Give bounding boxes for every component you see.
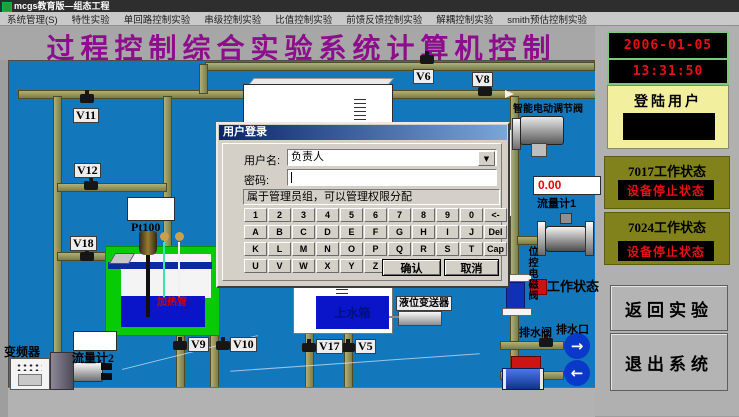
drain-valve-label: 排水阀 [519,324,552,340]
confirm-button[interactable]: 确认 [382,259,441,276]
valve-v12[interactable] [84,181,98,190]
key-button[interactable]: M [292,242,315,256]
status-7024-title: 7024工作状态 [605,217,729,236]
key-button[interactable]: N [316,242,339,256]
inverter-buttons [16,363,42,371]
work-status-label: 工作状态 [547,276,599,295]
flow1-display: 0.00 [533,176,601,195]
solenoid-flange [502,308,532,316]
flow1-label: 流量计1 [537,195,576,211]
smart-valve-body[interactable] [520,116,564,145]
date-display: 2006-01-05 [607,31,729,60]
valve-v9[interactable] [173,341,187,350]
pipe [500,341,564,350]
key-button[interactable]: K [244,242,267,256]
key-button[interactable]: E [340,225,363,239]
return-experiment-button[interactable]: 返回实验 [610,285,728,331]
tank-level-scale [354,99,366,120]
menu-item-decoupling[interactable]: 解耦控制实验 [429,12,500,26]
key-button[interactable]: Del [484,225,507,239]
flow-left-icon: ← [564,360,590,386]
key-button[interactable]: L [268,242,291,256]
window-title: mcgs教育版—组态工程 [14,0,110,12]
menu-item-single-loop[interactable]: 单回路控制实验 [117,12,198,26]
pipe [199,64,208,94]
keyboard-row-4: UVWXYZ [244,259,388,273]
inverter-device [10,358,50,390]
key-button[interactable]: 1 [244,208,267,222]
login-user-label: 登陆用户 [608,91,728,111]
level-transmitter-label: 液位变送器 [396,296,452,311]
key-button[interactable]: H [412,225,435,239]
valve-label-v17: V17 [316,339,343,354]
key-button[interactable]: 5 [340,208,363,222]
manual-valve-body[interactable] [545,226,587,252]
valve-v8[interactable] [478,87,492,96]
exit-system-button[interactable]: 退出系统 [610,333,728,391]
menu-bar: 系统管理(S) 特性实验 单回路控制实验 串级控制实验 比值控制实验 前馈反馈控… [0,12,739,26]
electrode-knob [160,232,169,241]
key-button[interactable]: <- [484,208,507,222]
pt100-rod [146,255,150,317]
inverter-label: 变频器 [4,343,40,360]
storage-tank-water: 上水箱 [316,296,389,329]
pipe [57,183,167,192]
key-button[interactable]: Cap [484,242,507,256]
valve-label-v18: V18 [70,236,97,251]
valve-v10[interactable] [216,341,230,350]
key-button[interactable]: Q [388,242,411,256]
heating-tank-interior [121,254,211,298]
status-7017-title: 7017工作状态 [605,161,729,180]
dialog-titlebar[interactable]: 用户登录 [219,125,507,140]
valve-label-v5: V5 [355,339,376,354]
menu-item-system[interactable]: 系统管理(S) [0,12,65,26]
smart-valve-actuator [531,143,547,157]
text-caret [291,172,292,183]
valve-v11[interactable] [80,94,94,103]
username-label: 用户名: [244,152,280,168]
menu-item-smith[interactable]: smith预估控制实验 [500,12,594,26]
key-button[interactable]: D [316,225,339,239]
login-user-display [623,113,715,140]
cancel-button[interactable]: 取消 [444,259,499,276]
heater-label: 加热管 [157,297,193,308]
manual-valve-flange [585,221,594,256]
key-button[interactable]: T [460,242,483,256]
onoff-valve-label: 位控电磁阀 [524,246,539,308]
drain-outlet-label: 排水口 [556,321,589,337]
key-button[interactable]: X [316,259,339,273]
status-7017-value: 设备停止状态 [618,180,714,200]
upper-water-tank [243,84,393,124]
valve-v6[interactable] [420,55,434,64]
key-button[interactable]: 9 [436,208,459,222]
smart-valve-label: 智能电动调节阀 [513,100,583,115]
flowmeter2-cap [101,373,112,380]
window-titlebar: mcgs教育版—组态工程 [0,0,739,12]
transmitter-stub [389,316,399,318]
key-button[interactable]: J [460,225,483,239]
username-value: 负责人 [291,151,324,163]
pipe [205,62,595,71]
pt100-display [127,197,175,221]
login-dialog: 用户登录 用户名: 负责人 ▼ 密码: 属于管理员组，可以管理权限分配 1234… [216,122,510,288]
valve-label-v8: V8 [472,72,493,87]
manual-valve-stem [560,213,572,224]
key-button[interactable]: 4 [316,208,339,222]
pump-column [50,352,74,390]
key-button[interactable]: C [292,225,315,239]
keyboard-row-3: KLMNOPQRSTCap [244,242,508,256]
keyboard-row-2: ABCDEFGHIJDel [244,225,508,239]
flow-arrow-icon [505,90,514,98]
drain-pump [502,368,544,390]
key-button[interactable]: A [244,225,267,239]
level-transmitter [398,311,442,326]
key-button[interactable]: 2 [268,208,291,222]
valve-v17[interactable] [302,343,316,352]
status-7017-panel: 7017工作状态 设备停止状态 [604,156,730,209]
key-button[interactable]: B [268,225,291,239]
key-button[interactable]: P [364,242,387,256]
key-button[interactable]: W [292,259,315,273]
key-button[interactable]: V [268,259,291,273]
valve-label-v9: V9 [188,337,209,352]
valve-v18[interactable] [80,252,94,261]
time-display: 13:31:50 [607,58,729,85]
electrode-wire [163,242,165,298]
valve-v5[interactable] [341,343,355,352]
flow2-display [73,331,117,351]
menu-item-ratio[interactable]: 比值控制实验 [268,12,339,26]
pt100-label: Pt100 [131,220,160,235]
status-7024-panel: 7024工作状态 设备停止状态 [604,212,730,265]
valve-label-v12: V12 [74,163,101,178]
pipe [53,96,62,356]
mcgs-app-icon [2,2,12,12]
password-label: 密码: [244,172,269,188]
key-button[interactable]: R [412,242,435,256]
flow2-label: 流量计2 [72,349,114,366]
inverter-screen [18,374,42,386]
electrode-wire [178,242,180,298]
floor [8,387,595,417]
key-button[interactable]: 6 [364,208,387,222]
key-button[interactable]: S [436,242,459,256]
valve-label-v10: V10 [230,337,257,352]
group-info-text: 属于管理员组，可以管理权限分配 [243,189,500,205]
electrode-knob [175,232,184,241]
key-button[interactable]: 3 [292,208,315,222]
key-button[interactable]: I [436,225,459,239]
key-button[interactable]: U [244,259,267,273]
keyboard-row-1: 1234567890<- [244,208,508,222]
key-button[interactable]: O [340,242,363,256]
key-button[interactable]: 8 [412,208,435,222]
combo-dropdown-icon[interactable]: ▼ [478,151,495,166]
status-7024-value: 设备停止状态 [618,241,714,261]
key-button[interactable]: G [388,225,411,239]
key-button[interactable]: 0 [460,208,483,222]
password-input[interactable] [287,169,497,186]
menu-item-feedforward[interactable]: 前馈反馈控制实验 [339,12,429,26]
menu-item-cascade[interactable]: 串级控制实验 [197,12,268,26]
valve-label-v11: V11 [73,108,99,123]
username-combobox[interactable]: 负责人 ▼ [287,149,497,166]
key-button[interactable]: F [364,225,387,239]
menu-item-characteristic[interactable]: 特性实验 [65,12,117,26]
valve-label-v6: V6 [413,69,434,84]
key-button[interactable]: 7 [388,208,411,222]
key-button[interactable]: Y [340,259,363,273]
login-user-panel: 登陆用户 [607,85,729,149]
